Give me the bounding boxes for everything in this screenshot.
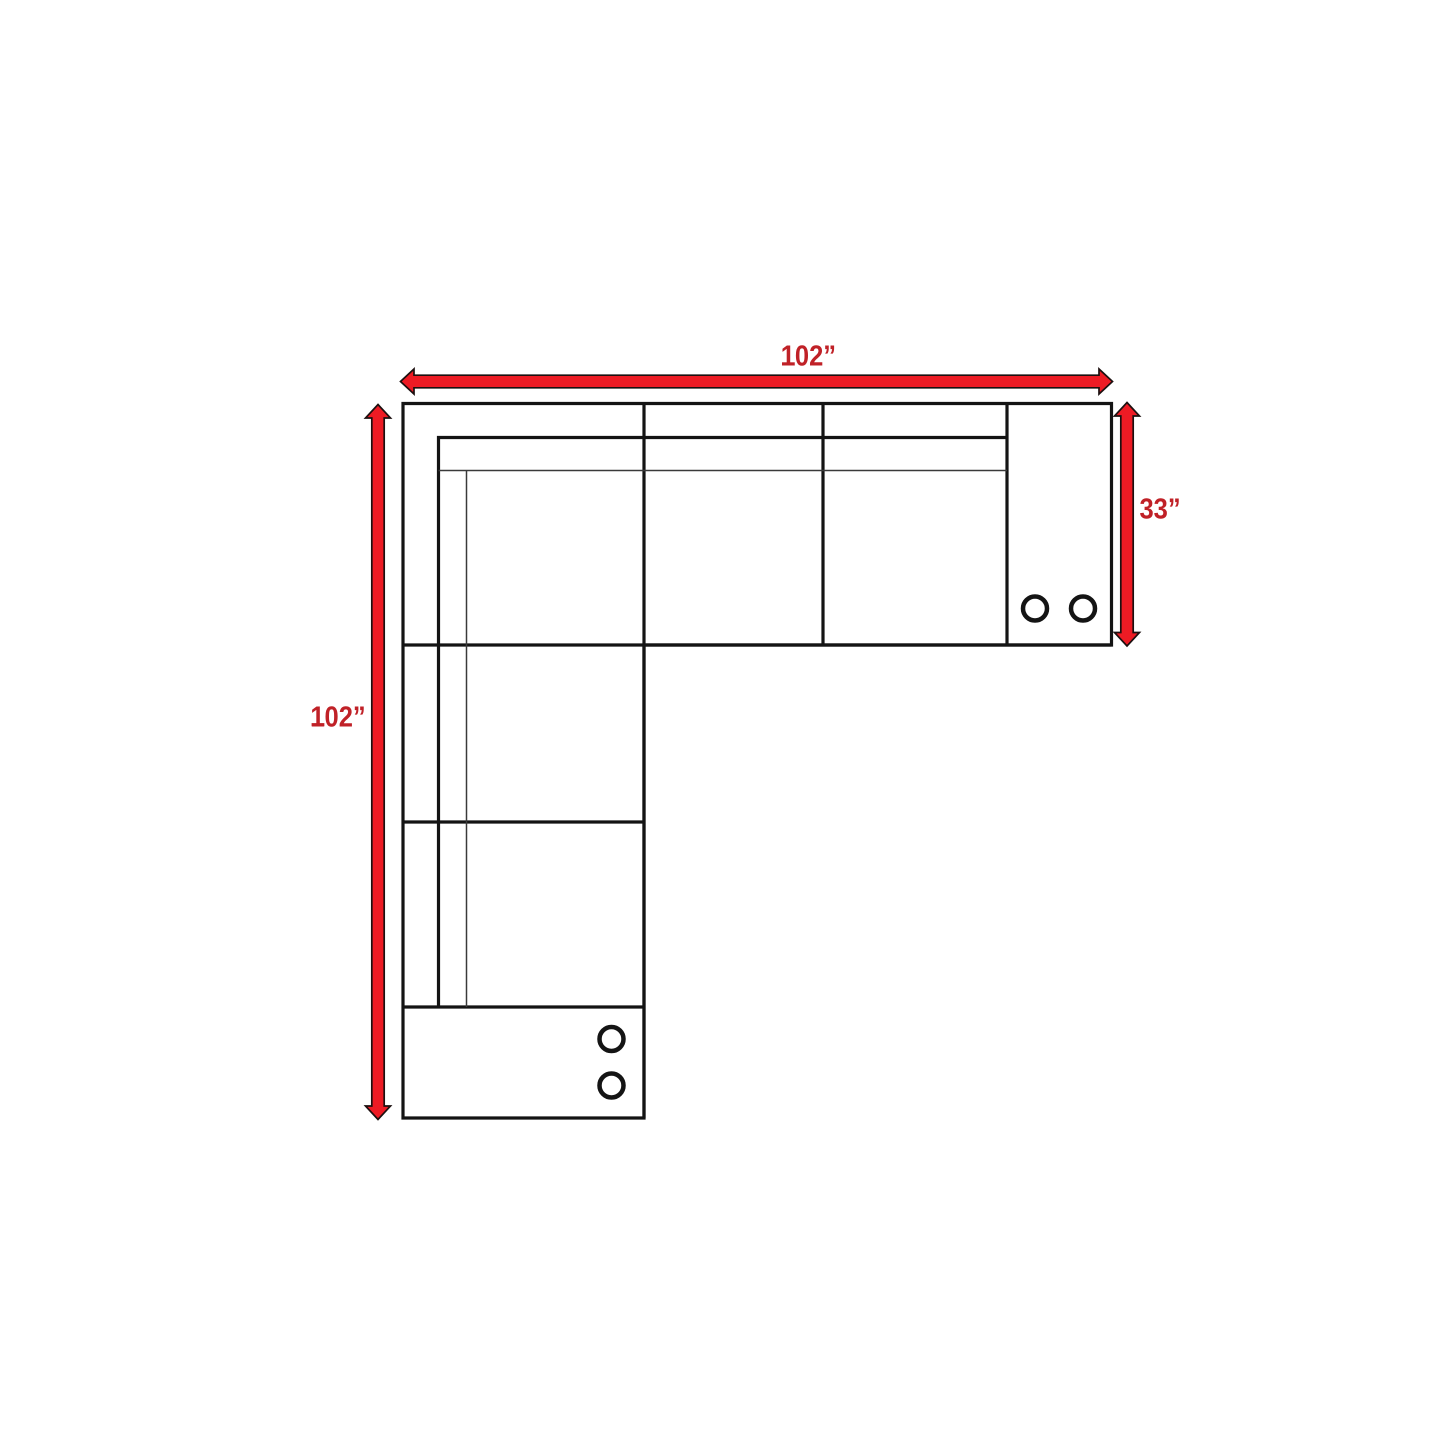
svg-text:102”: 102” — [781, 339, 836, 372]
svg-text:102”: 102” — [310, 700, 365, 733]
svg-text:33”: 33” — [1139, 492, 1180, 525]
